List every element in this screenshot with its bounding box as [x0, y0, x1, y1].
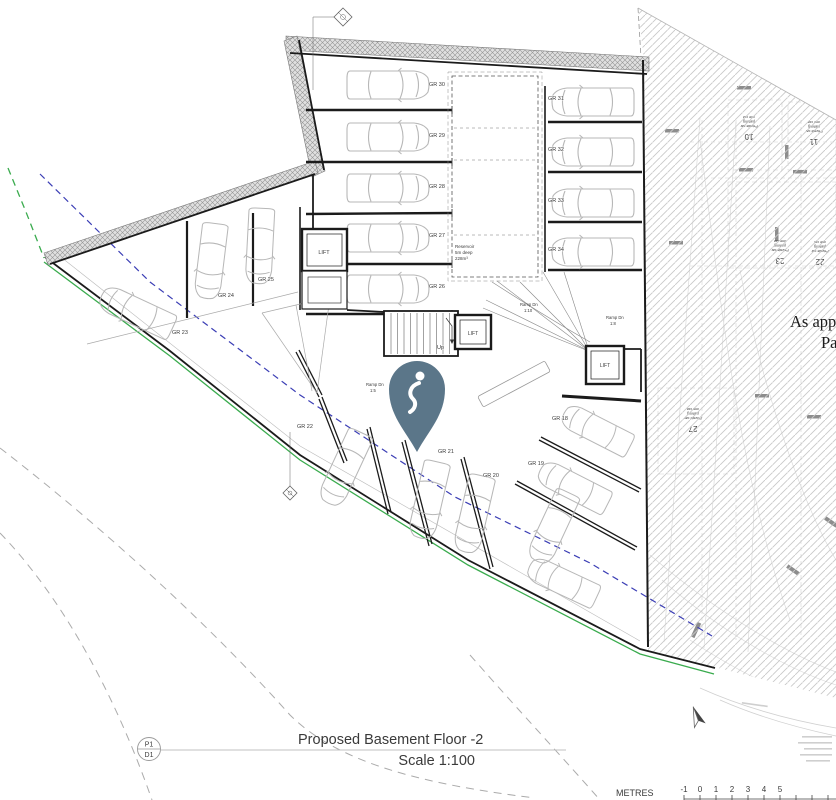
sheet-code-top: P1	[145, 742, 154, 749]
sheet-code-bottom: D1	[145, 752, 154, 759]
reservoir-label: Reservoir	[455, 244, 475, 249]
scale-bar: METRES -1 0 1 2 3 4 5	[616, 785, 836, 800]
north-arrow-icon	[688, 705, 706, 728]
ramp-fan	[483, 272, 590, 351]
stall-label: GR 26	[429, 284, 445, 290]
car-icon	[191, 222, 231, 301]
car-icon	[405, 458, 454, 541]
scale-bar-ticks	[684, 795, 836, 800]
car-icon	[552, 186, 634, 220]
wall-lines	[50, 40, 648, 647]
stall-label: GR 32	[548, 147, 564, 153]
car-icon	[552, 85, 634, 119]
reservoir-label: 228m³	[455, 256, 468, 261]
reservoir-label: 5m deep	[455, 250, 473, 255]
scale-tick-label: 0	[698, 785, 703, 794]
adjacent-hatched-region: 10 Private car parking one car 11 Privat…	[638, 0, 836, 800]
car-icon	[242, 208, 277, 285]
scale-tick-label: 4	[762, 785, 767, 794]
stall-label: GR 18	[552, 416, 568, 422]
lift-label: LIFT	[468, 331, 478, 337]
lift-label: LIFT	[318, 250, 330, 256]
scale-tick-label: 1	[714, 785, 719, 794]
car-icon	[95, 281, 179, 343]
stairs: Up	[384, 311, 458, 356]
hatch-overlay	[638, 0, 836, 800]
car-icon	[347, 221, 429, 255]
ramp-label: Ramp Dn	[520, 302, 538, 307]
car-icon	[552, 135, 634, 169]
stall-label: GR 19	[528, 461, 544, 467]
scale-tick-label: -1	[680, 785, 688, 794]
stall-label: GR 29	[429, 133, 445, 139]
clipped-note: Pa	[821, 333, 836, 352]
title-block: P1 D1 Proposed Basement Floor -2 Scale 1…	[138, 732, 567, 769]
drawing-scale: Scale 1:100	[398, 753, 475, 769]
stall-label: GR 22	[297, 424, 313, 430]
stairs-up-label: Up	[437, 345, 444, 351]
drawing-canvas: 10 Private car parking one car 11 Privat…	[0, 0, 836, 800]
stall-label: GR 25	[258, 277, 274, 283]
car-icon	[347, 68, 429, 102]
ramp-label: 1:5	[370, 388, 376, 393]
lift-core-east: LIFT	[586, 346, 641, 392]
stall-label: GR 31	[548, 96, 564, 102]
location-pin-icon[interactable]	[389, 361, 445, 452]
traffic-island	[478, 361, 551, 407]
stall-label: GR 21	[438, 449, 454, 455]
ramp-label: Ramp Dn	[366, 382, 384, 387]
scale-tick-label: 3	[746, 785, 751, 794]
floor-plan-drawing: 10 Private car parking one car 11 Privat…	[0, 0, 836, 800]
car-icon	[552, 235, 634, 269]
faint-annotations	[700, 688, 836, 762]
stall-label: GR 24	[218, 293, 234, 299]
ramp-label: 1:8	[610, 321, 616, 326]
car-icon	[347, 272, 429, 306]
lift-core-center: LIFT	[455, 315, 491, 349]
stall-label: GR 27	[429, 233, 445, 239]
lift-core-west: LIFT	[302, 229, 347, 309]
scale-bar-unit: METRES	[616, 788, 654, 798]
site-boundary	[8, 168, 715, 674]
scale-tick-label: 2	[730, 785, 735, 794]
stall-label: GR 28	[429, 184, 445, 190]
lift-label: LIFT	[600, 363, 610, 369]
stall-label: GR 23	[172, 330, 188, 336]
clipped-note: As app	[790, 312, 836, 331]
reservoir: Reservoir 5m deep 228m³	[448, 72, 542, 281]
car-icon	[347, 171, 429, 205]
stall-label: GR 30	[429, 82, 445, 88]
stall-label: GR 20	[483, 473, 499, 479]
stall-label: GR 33	[548, 198, 564, 204]
stall-label: GR 34	[548, 247, 564, 253]
car-icon	[533, 456, 614, 518]
car-icon	[523, 553, 603, 612]
scale-tick-label: 5	[778, 785, 783, 794]
drawing-title: Proposed Basement Floor -2	[298, 732, 483, 748]
car-icon	[347, 120, 429, 154]
ramp-label: 1:10	[524, 308, 533, 313]
ramp-label: Ramp Dn	[606, 315, 624, 320]
car-icon	[450, 472, 499, 555]
